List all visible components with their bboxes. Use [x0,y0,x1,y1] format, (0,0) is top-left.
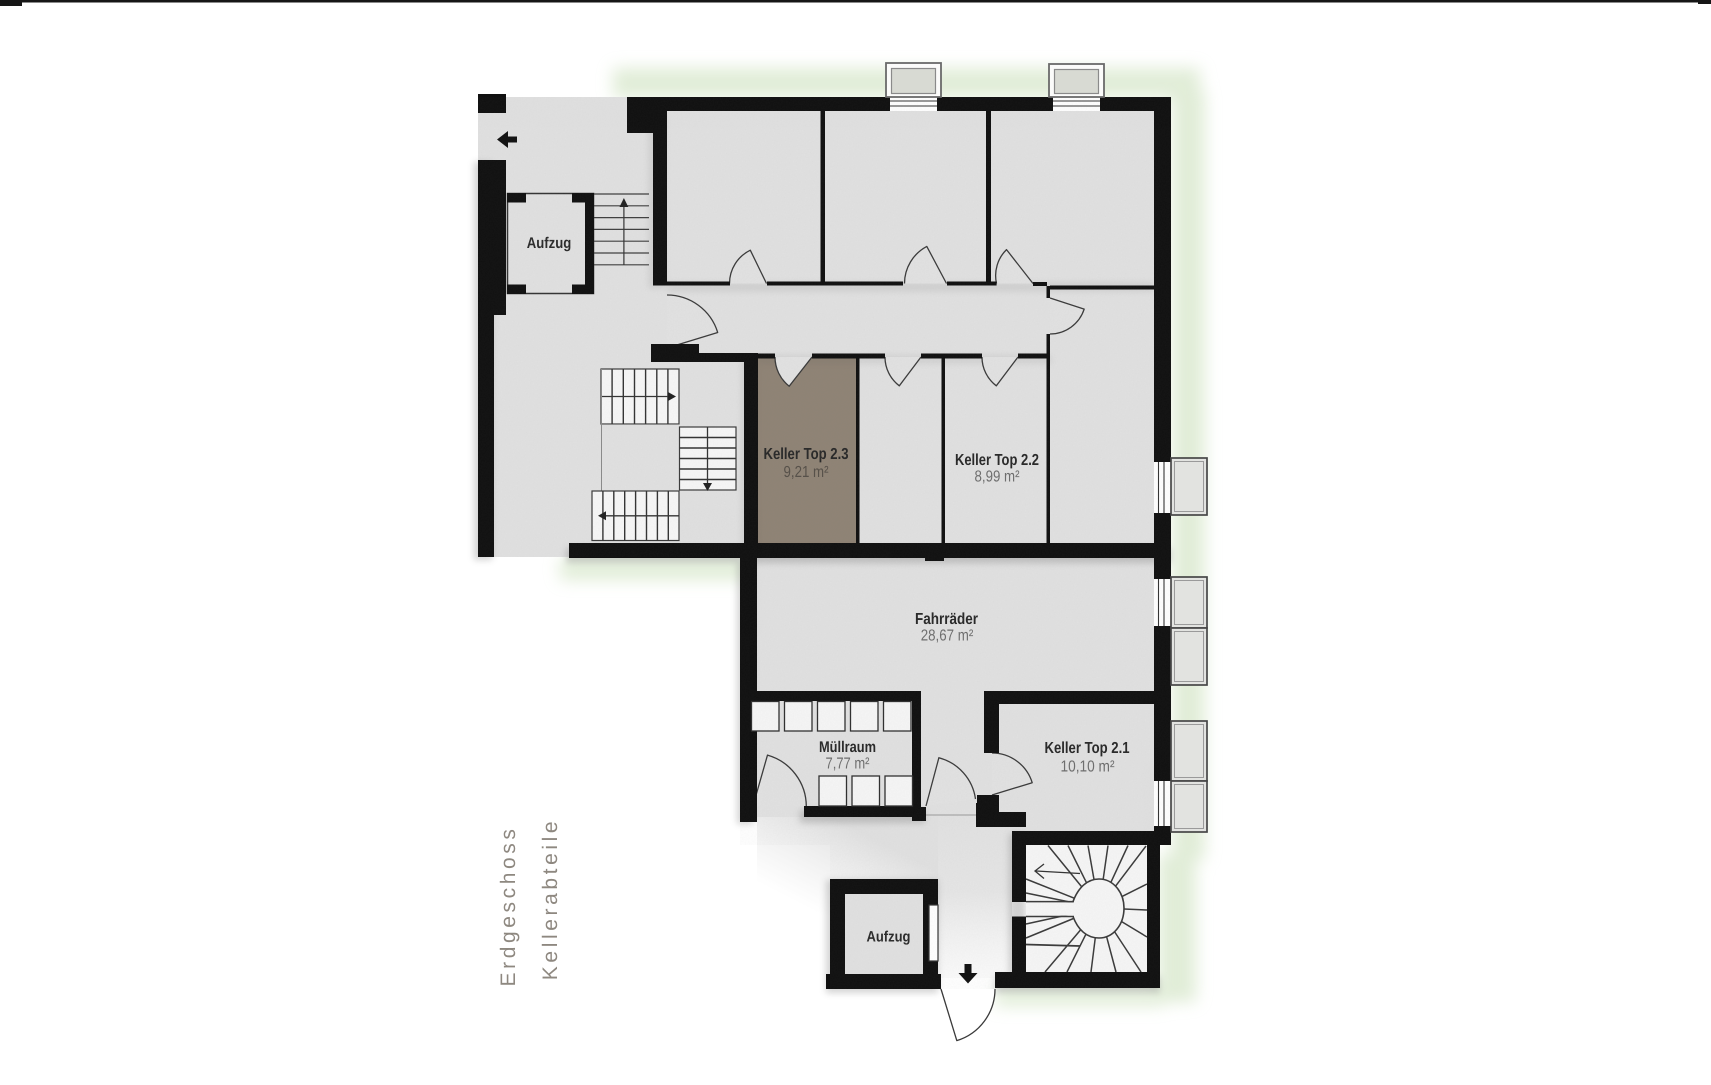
svg-text:Keller Top 2.1: Keller Top 2.1 [1045,740,1130,757]
svg-text:9,21 m²: 9,21 m² [784,464,830,481]
svg-text:Keller Top 2.3: Keller Top 2.3 [764,446,849,463]
svg-text:Keller Top 2.2: Keller Top 2.2 [955,452,1039,469]
svg-text:8,99 m²: 8,99 m² [975,469,1021,486]
svg-text:Müllraum: Müllraum [819,739,876,756]
svg-text:7,77 m²: 7,77 m² [826,756,871,773]
svg-text:10,10 m²: 10,10 m² [1061,759,1116,776]
svg-text:28,67 m²: 28,67 m² [921,628,974,645]
svg-text:Erdgeschoss: Erdgeschoss [497,826,520,987]
svg-text:Fahrräder: Fahrräder [915,611,978,628]
svg-text:Kellerabteile: Kellerabteile [539,818,562,980]
